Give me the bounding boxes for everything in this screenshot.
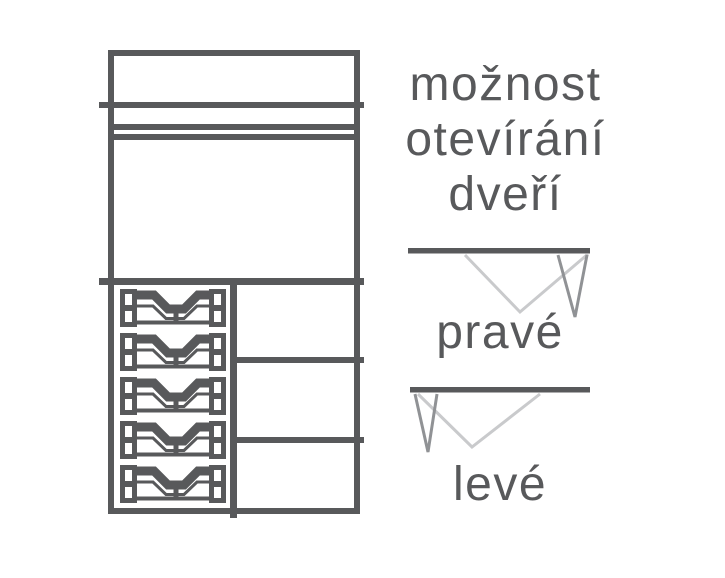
door-swing-left-icon [403, 383, 593, 463]
option-label-left: levé [403, 457, 597, 512]
drawer-basket [120, 289, 226, 327]
drawer-basket [120, 465, 226, 503]
door-top-bar [410, 387, 590, 393]
door-open-wide-line [465, 254, 588, 312]
option-label-right: pravé [403, 305, 597, 360]
drawer-baskets [120, 289, 226, 503]
door-top-bar [408, 248, 590, 254]
drawer-basket [120, 421, 226, 459]
heading: možnost otevírání dveří [383, 57, 628, 222]
heading-line-1: možnost [383, 57, 628, 112]
drawer-basket [120, 333, 226, 371]
drawer-basket [120, 377, 226, 415]
diagram-canvas: možnost otevírání dveří pravé levé [0, 0, 725, 578]
heading-line-3: dveří [383, 167, 628, 222]
heading-line-2: otevírání [383, 112, 628, 167]
wardrobe-front-diagram [95, 40, 375, 525]
